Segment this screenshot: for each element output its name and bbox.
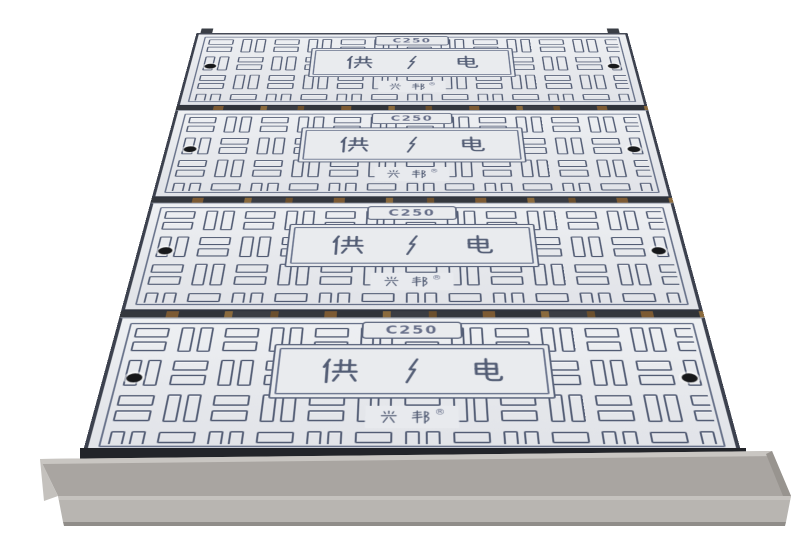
pattern-brick (603, 117, 617, 133)
char-bang (411, 82, 426, 90)
frame-front-face (58, 496, 791, 522)
pattern-brick (557, 160, 587, 167)
lightning-bolt-icon (403, 356, 422, 386)
pattern-brick (208, 39, 234, 44)
pattern-brick (579, 75, 592, 89)
pattern-brick (570, 138, 584, 155)
char-xing (388, 82, 403, 90)
pattern-brick (494, 328, 529, 338)
pattern-brick (272, 138, 286, 155)
pattern-brick (623, 117, 652, 123)
brand-mark: ® (365, 406, 460, 428)
pattern-brick (186, 183, 202, 191)
pattern-brick (336, 293, 351, 303)
pattern-brick (125, 431, 147, 444)
brand-mark: ® (378, 81, 446, 92)
pattern-brick (511, 293, 526, 303)
registered-mark: ® (428, 82, 436, 87)
char-dian (465, 356, 508, 386)
char-gong (316, 356, 359, 386)
pattern-brick (259, 126, 288, 132)
pattern-brick (204, 431, 224, 444)
pattern-brick (191, 264, 208, 286)
pattern-brick (670, 237, 684, 258)
pattern-brick (203, 211, 219, 231)
center-plaque (308, 48, 516, 77)
pattern-brick (556, 57, 569, 71)
pattern-brick (206, 47, 233, 52)
pattern-brick (209, 264, 226, 286)
pattern-brick (604, 39, 630, 44)
pattern-brick (522, 183, 553, 190)
pattern-brick (490, 276, 523, 285)
pattern-brick (173, 237, 190, 258)
lightning-bolt-icon (404, 135, 419, 154)
pattern-brick (130, 341, 167, 351)
cover-panel: C250 ® (82, 317, 742, 455)
center-plaque (297, 127, 526, 162)
pattern-brick (666, 293, 684, 303)
pattern-brick (210, 410, 248, 421)
pattern-brick (524, 431, 542, 444)
pattern-brick (325, 211, 356, 219)
pattern-brick (199, 75, 227, 81)
pattern-brick (424, 293, 438, 303)
pattern-brick (177, 327, 196, 352)
char-bang (411, 169, 427, 179)
pattern-brick (673, 328, 710, 338)
pattern-brick (225, 431, 244, 444)
pattern-brick (256, 432, 295, 443)
pattern-brick (197, 83, 225, 89)
pattern-brick (300, 94, 327, 100)
pattern-brick (162, 394, 182, 422)
pattern-brick (525, 75, 537, 89)
pattern-brick (590, 360, 608, 386)
pattern-brick (572, 39, 585, 52)
pattern-brick (617, 264, 634, 286)
pattern-brick (406, 183, 418, 191)
pattern-brick (606, 211, 622, 231)
pattern-brick (134, 328, 170, 338)
pattern-brick (274, 293, 308, 302)
pattern-brick (639, 183, 655, 191)
frame-bottom-edge (63, 522, 786, 526)
pattern-brick (188, 117, 217, 123)
pattern-brick (536, 160, 550, 177)
pattern-brick (552, 126, 581, 132)
load-class-label: C250 (371, 113, 453, 124)
pattern-brick (333, 117, 361, 123)
pattern-brick (407, 94, 418, 101)
pattern-brick (542, 57, 554, 71)
pattern-brick (116, 395, 155, 406)
pattern-brick (220, 138, 249, 145)
pattern-brick (643, 394, 663, 422)
pattern-brick (530, 117, 543, 133)
pattern-brick (196, 248, 229, 256)
pattern-brick (453, 432, 491, 443)
pattern-brick (555, 138, 569, 155)
pattern-brick (486, 211, 517, 219)
pattern-brick (543, 211, 558, 231)
pattern-brick (233, 276, 267, 285)
pattern-brick (235, 264, 268, 272)
pattern-brick (164, 211, 196, 219)
pattern-brick (192, 94, 206, 101)
char-dian (451, 54, 482, 70)
char-dian (459, 233, 497, 257)
registered-mark: ® (430, 168, 439, 174)
pattern-brick (279, 94, 292, 101)
pattern-brick (609, 360, 628, 386)
pattern-brick (478, 117, 506, 123)
pattern-brick (591, 138, 621, 145)
pattern-brick (570, 237, 586, 258)
pattern-brick (172, 361, 209, 371)
char-xing (378, 409, 399, 425)
pattern-brick (596, 160, 611, 177)
pattern-brick (600, 183, 631, 190)
pattern-brick (254, 39, 266, 52)
pattern-brick (273, 47, 299, 52)
pattern-brick (220, 211, 236, 231)
center-plaque (284, 224, 539, 267)
pattern-brick (222, 341, 258, 351)
pattern-brick (244, 211, 276, 219)
pattern-brick (645, 211, 677, 219)
cover-panel: C250 ® (177, 33, 648, 106)
pattern-brick (613, 75, 633, 81)
pattern-brick (568, 394, 586, 422)
pattern-brick (615, 83, 633, 89)
pattern-brick (261, 117, 289, 123)
pattern-brick (199, 237, 232, 245)
pattern-brick (663, 394, 684, 422)
pattern-brick (613, 248, 646, 256)
pattern-brick (223, 117, 237, 133)
pattern-brick (597, 410, 636, 421)
pattern-brick (422, 94, 433, 101)
pattern-brick (268, 75, 295, 81)
pattern-brick (661, 276, 684, 285)
pattern-brick (635, 361, 672, 371)
pattern-brick (182, 394, 202, 422)
registered-mark: ® (432, 274, 442, 281)
pattern-brick (550, 264, 566, 286)
pattern-brick (337, 83, 364, 89)
pattern-brick (544, 75, 571, 81)
pattern-brick (265, 183, 279, 191)
pattern-brick (426, 431, 441, 444)
pattern-brick (104, 431, 126, 444)
pattern-brick (156, 432, 196, 443)
pattern-brick (212, 395, 250, 406)
pattern-brick (618, 94, 632, 101)
char-bang (411, 409, 431, 425)
pattern-brick (169, 183, 185, 191)
pattern-brick (623, 211, 639, 231)
pattern-brick (150, 264, 184, 272)
pattern-brick (214, 160, 229, 177)
pattern-brick (147, 276, 182, 285)
pattern-brick (329, 170, 359, 177)
cover-panel: C250 ® (121, 203, 703, 311)
pattern-brick (699, 431, 720, 444)
pattern-brick (648, 327, 667, 352)
pattern-brick (633, 160, 655, 167)
stack-bottom-shadow (80, 448, 746, 459)
pattern-brick (482, 170, 512, 177)
lightning-bolt-icon (404, 233, 421, 257)
pattern-brick (361, 293, 394, 302)
load-class-label: C250 (375, 36, 449, 45)
pattern-brick (612, 160, 627, 177)
frame-front-top-highlight (58, 496, 791, 500)
pattern-brick (500, 183, 514, 191)
pattern-brick (477, 94, 489, 101)
char-xing (382, 275, 400, 287)
pattern-brick (140, 293, 159, 303)
pattern-brick (587, 117, 601, 133)
pattern-brick (371, 94, 398, 100)
pattern-brick (247, 293, 264, 303)
pattern-brick (350, 94, 362, 101)
pattern-brick (445, 183, 475, 190)
frame-left-cut-highlight (40, 459, 58, 501)
pattern-brick (566, 211, 598, 219)
pattern-brick (644, 138, 655, 155)
load-class-label: C250 (367, 206, 457, 220)
pattern-brick (217, 360, 235, 386)
pattern-brick (576, 276, 610, 285)
pattern-brick (210, 183, 241, 190)
pattern-brick (648, 222, 681, 230)
pattern-brick (216, 57, 229, 71)
pattern-brick (247, 75, 260, 89)
pattern-brick (520, 39, 532, 52)
pattern-brick (142, 360, 162, 386)
pattern-brick (597, 293, 614, 303)
pattern-brick (317, 293, 332, 303)
pattern-brick (579, 293, 596, 303)
pattern-brick (634, 264, 652, 286)
pattern-brick (161, 222, 194, 230)
char-dian (454, 135, 488, 154)
pattern-brick (405, 431, 420, 444)
pattern-brick (314, 328, 349, 338)
pattern-brick (423, 183, 435, 191)
pattern-brick (196, 327, 214, 352)
pattern-brick (649, 432, 689, 443)
pattern-brick (264, 94, 277, 101)
pattern-brick (344, 183, 357, 191)
pattern-brick (355, 432, 393, 443)
pattern-brick (606, 47, 632, 52)
pattern-brick (243, 222, 275, 230)
pattern-brick (551, 432, 590, 443)
pattern-brick (174, 170, 205, 177)
pattern-brick (622, 293, 657, 302)
pattern-brick (237, 360, 255, 386)
pattern-brick (535, 293, 569, 302)
cover-stack-plane: C250 ® C250 ® (82, 33, 742, 455)
pattern-brick (719, 327, 720, 352)
pattern-brick (584, 328, 620, 338)
pattern-brick (690, 395, 721, 406)
pattern-brick (595, 395, 633, 406)
pattern-brick (567, 222, 599, 230)
registered-mark: ® (435, 407, 446, 417)
char-gong (327, 233, 365, 257)
pattern-brick (224, 328, 260, 338)
char-xing (385, 169, 401, 179)
pattern-brick (551, 117, 580, 123)
pattern-brick (473, 39, 499, 44)
pattern-brick (207, 94, 221, 101)
pattern-brick (601, 431, 621, 444)
pattern-brick (285, 57, 297, 71)
pattern-brick (229, 293, 246, 303)
pattern-brick (239, 237, 255, 258)
pattern-brick (230, 160, 245, 177)
pattern-brick (512, 94, 540, 100)
pattern-brick (159, 293, 177, 303)
pattern-brick (593, 75, 607, 89)
pattern-brick (586, 39, 599, 52)
pattern-brick (229, 94, 257, 100)
pattern-brick (197, 138, 212, 155)
pattern-brick (623, 57, 632, 71)
pattern-brick (406, 293, 419, 303)
pattern-brick (484, 183, 497, 191)
pattern-brick (367, 183, 397, 190)
pattern-brick (326, 431, 343, 444)
pattern-brick (267, 83, 294, 89)
pattern-brick (622, 431, 642, 444)
pattern-brick (177, 160, 208, 167)
pattern-brick (237, 57, 264, 62)
pattern-brick (492, 94, 504, 101)
pattern-brick (335, 94, 347, 101)
pattern-brick (307, 410, 345, 421)
pattern-brick (253, 160, 283, 167)
pattern-brick (578, 183, 593, 191)
pattern-brick (538, 39, 564, 44)
pattern-brick (327, 183, 340, 191)
pattern-brick (305, 431, 322, 444)
pattern-brick (232, 75, 245, 89)
pattern-brick (574, 264, 608, 272)
pattern-brick (562, 183, 577, 191)
pattern-brick (701, 360, 720, 386)
pattern-brick (270, 57, 282, 71)
cover-panel: C250 ® (152, 110, 672, 198)
char-gong (343, 54, 374, 70)
lightning-bolt-icon (405, 54, 419, 70)
pattern-brick (448, 293, 482, 302)
center-plaque (268, 344, 556, 399)
pattern-brick (629, 327, 648, 352)
pattern-brick (256, 138, 270, 155)
pattern-brick (638, 375, 676, 385)
pattern-brick (545, 83, 572, 89)
pattern-brick (586, 341, 622, 351)
load-class-label: C250 (361, 322, 462, 339)
brand-mark: ® (370, 273, 454, 290)
pattern-brick (693, 410, 720, 421)
pattern-brick (593, 147, 623, 154)
brand-mark: ® (374, 167, 449, 181)
pattern-brick (476, 83, 503, 89)
pattern-brick (677, 341, 714, 351)
pattern-brick (274, 39, 300, 44)
frame-right-edge (766, 451, 791, 496)
pattern-brick (442, 94, 469, 100)
pattern-brick (576, 64, 603, 69)
char-gong (336, 135, 370, 154)
product-photo: C250 ® C250 ® (0, 0, 800, 533)
pattern-brick (252, 170, 282, 177)
pattern-brick (625, 126, 654, 132)
pattern-brick (239, 117, 253, 133)
pattern-brick (240, 39, 253, 52)
pattern-brick (186, 126, 215, 132)
pattern-brick (503, 431, 520, 444)
pattern-brick (588, 237, 604, 258)
pattern-brick (288, 183, 318, 190)
pattern-brick (540, 47, 566, 52)
pattern-brick (236, 64, 263, 69)
pattern-brick (582, 94, 610, 100)
pattern-brick (218, 147, 248, 154)
pattern-brick (169, 375, 207, 385)
pattern-brick (113, 410, 152, 421)
pattern-brick (248, 183, 263, 191)
pattern-brick (559, 170, 589, 177)
pattern-brick (658, 264, 684, 272)
pattern-brick (186, 293, 221, 302)
pattern-brick (256, 237, 271, 258)
pattern-brick (562, 94, 575, 101)
pattern-brick (575, 57, 602, 62)
pattern-brick (501, 410, 539, 421)
pattern-brick (611, 237, 644, 245)
char-bang (411, 275, 429, 287)
pattern-brick (635, 170, 655, 177)
pattern-brick (548, 94, 561, 101)
pattern-brick (340, 39, 365, 44)
pattern-brick (559, 327, 576, 352)
pattern-brick (319, 276, 352, 285)
pattern-brick (493, 293, 508, 303)
